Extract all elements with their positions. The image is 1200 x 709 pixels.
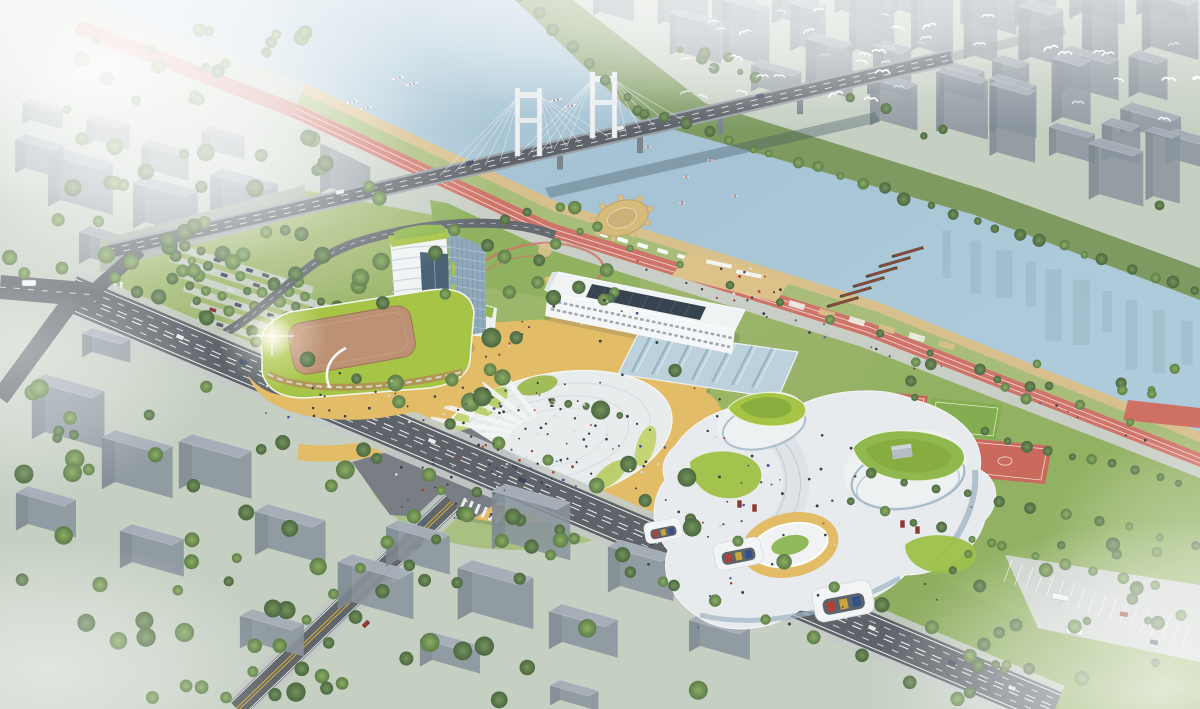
tree xyxy=(302,615,312,625)
tree xyxy=(484,363,497,376)
person-dot xyxy=(590,424,592,426)
tree xyxy=(1043,446,1053,456)
person-dot xyxy=(777,446,779,448)
tree xyxy=(876,329,884,337)
person-dot xyxy=(621,373,624,376)
tree xyxy=(897,192,911,206)
person-dot xyxy=(823,323,825,325)
tree xyxy=(936,522,947,533)
tree xyxy=(436,486,445,495)
person-dot xyxy=(528,326,530,328)
person-dot xyxy=(452,466,454,468)
person-dot xyxy=(842,606,844,608)
person-dot xyxy=(767,464,770,467)
person-dot xyxy=(635,487,637,489)
person-dot xyxy=(432,459,434,461)
person-dot xyxy=(718,475,721,478)
person-dot xyxy=(497,474,499,476)
tree xyxy=(500,214,510,224)
tree xyxy=(256,444,267,455)
tree xyxy=(911,394,918,401)
person-dot xyxy=(510,449,512,451)
person-dot xyxy=(781,492,784,495)
person-dot xyxy=(639,485,641,487)
person-dot xyxy=(834,544,836,546)
water-reflection xyxy=(1045,269,1061,341)
person-dot xyxy=(486,388,488,390)
person-dot xyxy=(913,368,915,370)
person-dot xyxy=(525,456,528,459)
person-dot xyxy=(545,423,547,425)
person-dot xyxy=(493,493,495,495)
person-dot xyxy=(795,319,797,321)
person-dot xyxy=(324,395,326,397)
person-dot xyxy=(758,290,761,293)
person-dot xyxy=(502,410,505,413)
person-dot xyxy=(490,513,493,516)
person-dot xyxy=(779,288,782,291)
person-dot xyxy=(766,316,768,318)
tree xyxy=(1117,385,1127,395)
tree xyxy=(874,597,889,612)
tree xyxy=(355,563,366,574)
tree xyxy=(591,401,610,420)
tree xyxy=(356,442,371,457)
person-dot xyxy=(726,501,728,503)
person-dot xyxy=(394,393,396,395)
person-dot xyxy=(470,435,472,437)
person-dot xyxy=(450,476,453,479)
tree xyxy=(451,577,462,588)
person-dot xyxy=(606,434,609,437)
person-dot xyxy=(508,342,510,344)
person-dot xyxy=(485,509,488,512)
person-dot xyxy=(497,463,499,465)
tree xyxy=(553,532,569,548)
tree xyxy=(1127,264,1137,274)
person-dot xyxy=(537,433,539,435)
person-dot xyxy=(496,486,498,488)
person-dot xyxy=(718,398,721,401)
person-dot xyxy=(534,409,536,411)
tree xyxy=(523,208,532,217)
person-dot xyxy=(647,563,650,566)
tree xyxy=(328,589,339,600)
person-dot xyxy=(1039,402,1041,404)
tree xyxy=(925,358,937,370)
person-dot xyxy=(408,421,411,424)
person-dot xyxy=(457,457,459,459)
person-dot xyxy=(508,345,510,347)
person-dot xyxy=(636,423,638,425)
tree xyxy=(524,539,538,553)
tree xyxy=(932,484,941,493)
person-dot xyxy=(808,478,811,481)
tree xyxy=(1147,389,1157,399)
tree xyxy=(481,239,494,252)
person-dot xyxy=(422,488,425,491)
person-dot xyxy=(531,450,533,452)
person-dot xyxy=(502,467,504,469)
person-dot xyxy=(701,288,703,290)
person-dot xyxy=(576,461,578,463)
person-dot xyxy=(581,323,583,325)
person-dot xyxy=(817,594,820,597)
person-dot xyxy=(494,469,496,471)
tree xyxy=(829,581,840,592)
person-dot xyxy=(574,430,576,432)
person-dot xyxy=(400,466,403,469)
person-dot xyxy=(506,463,508,465)
person-dot xyxy=(808,331,811,334)
person-dot xyxy=(530,467,532,469)
person-dot xyxy=(720,267,723,270)
person-dot xyxy=(517,409,519,411)
rendering-stage xyxy=(0,0,1200,709)
tree xyxy=(776,554,792,570)
person-dot xyxy=(407,405,409,407)
tree xyxy=(1150,273,1160,283)
person-dot xyxy=(313,415,316,418)
person-dot xyxy=(730,582,733,585)
tree xyxy=(855,649,869,663)
tree xyxy=(349,610,363,624)
tree xyxy=(294,661,309,676)
person-dot xyxy=(422,466,424,468)
tree xyxy=(615,547,630,562)
person-dot xyxy=(733,299,735,301)
person-dot xyxy=(477,444,480,447)
person-dot xyxy=(605,438,608,441)
water-reflection xyxy=(1026,262,1036,307)
tree xyxy=(626,245,633,252)
tree xyxy=(905,375,916,386)
person-dot xyxy=(406,499,408,501)
person-dot xyxy=(716,297,718,299)
kayak-wake xyxy=(645,147,651,148)
tree xyxy=(375,584,389,598)
tree xyxy=(336,677,349,690)
tree xyxy=(542,454,553,465)
person-dot xyxy=(504,489,506,491)
person-dot xyxy=(924,583,926,585)
person-dot xyxy=(771,563,774,566)
water-reflection xyxy=(996,250,1013,298)
water-reflection xyxy=(1153,310,1166,373)
person-dot xyxy=(779,479,781,481)
person-dot xyxy=(287,416,290,419)
tree xyxy=(494,369,511,386)
person-dot xyxy=(550,405,552,407)
person-dot xyxy=(741,591,744,594)
person-dot xyxy=(422,419,424,421)
tree xyxy=(407,509,421,523)
tree xyxy=(568,201,582,215)
person-dot xyxy=(642,465,645,468)
tree xyxy=(453,642,472,661)
person-dot xyxy=(486,458,488,460)
person-dot xyxy=(462,421,465,424)
person-dot xyxy=(1067,411,1069,413)
person-dot xyxy=(1077,417,1079,419)
person-dot xyxy=(312,407,315,410)
tree xyxy=(1021,441,1033,453)
water-reflection xyxy=(1126,300,1138,370)
person-dot xyxy=(831,499,833,501)
tree xyxy=(323,637,334,648)
person-dot xyxy=(500,403,503,406)
person-dot xyxy=(514,466,517,469)
tree xyxy=(264,599,282,617)
person-dot xyxy=(694,387,696,389)
water-reflection xyxy=(1181,321,1193,365)
tree xyxy=(926,350,933,357)
tree xyxy=(1096,253,1108,265)
person-dot xyxy=(547,433,549,435)
tree xyxy=(495,534,509,548)
tree xyxy=(1014,229,1026,241)
person-dot xyxy=(850,447,853,450)
person-dot xyxy=(738,275,741,278)
person-dot xyxy=(312,387,314,389)
tree xyxy=(920,132,927,139)
person-dot xyxy=(446,483,448,485)
tree xyxy=(1024,502,1036,514)
tree xyxy=(440,288,451,299)
tree xyxy=(481,328,501,348)
person-dot xyxy=(556,461,558,463)
person-dot xyxy=(664,446,667,449)
tree xyxy=(531,276,544,289)
tree xyxy=(336,460,355,479)
tree xyxy=(187,479,201,493)
tree xyxy=(1032,234,1045,247)
person-dot xyxy=(941,365,943,367)
person-dot xyxy=(552,305,555,308)
kayak-wake xyxy=(683,177,689,178)
tree xyxy=(568,533,580,545)
tree xyxy=(726,281,735,290)
person-dot xyxy=(1055,404,1058,407)
tree xyxy=(445,373,458,386)
person-dot xyxy=(537,382,539,384)
tree xyxy=(974,364,986,376)
person-dot xyxy=(854,475,856,477)
tree xyxy=(981,427,990,436)
tree xyxy=(825,315,835,325)
person-dot xyxy=(552,471,555,474)
tree xyxy=(683,518,702,537)
sun-glare xyxy=(217,281,327,391)
person-dot xyxy=(328,409,330,411)
person-dot xyxy=(746,299,748,301)
person-dot xyxy=(762,312,765,315)
tree xyxy=(576,228,583,235)
person-dot xyxy=(564,383,566,385)
tree xyxy=(732,536,743,547)
person-dot xyxy=(655,341,658,344)
person-dot xyxy=(599,340,602,343)
tree xyxy=(1025,381,1036,392)
person-dot xyxy=(466,500,468,502)
person-dot xyxy=(657,463,660,466)
person-dot xyxy=(567,312,569,314)
tree xyxy=(589,478,605,494)
tree xyxy=(510,331,523,344)
person-dot xyxy=(559,459,562,462)
person-dot xyxy=(590,473,592,475)
tree xyxy=(578,619,597,638)
tree xyxy=(281,520,298,537)
person-dot xyxy=(374,391,376,393)
tree xyxy=(910,519,918,527)
person-dot xyxy=(743,271,746,274)
person-dot xyxy=(462,386,464,388)
person-dot xyxy=(751,296,753,298)
water-reflection xyxy=(1073,280,1090,345)
person-dot xyxy=(594,424,597,427)
person-dot xyxy=(539,394,541,396)
person-dot xyxy=(368,407,371,410)
person-dot xyxy=(339,372,341,374)
wall-poster xyxy=(900,520,905,528)
person-dot xyxy=(498,411,501,414)
person-dot xyxy=(636,312,639,315)
person-dot xyxy=(651,544,653,546)
person-dot xyxy=(629,469,631,471)
person-dot xyxy=(574,417,576,419)
context-box-face xyxy=(1145,127,1153,201)
tree xyxy=(1190,286,1199,295)
tree xyxy=(491,691,508,708)
person-dot xyxy=(465,403,467,405)
person-dot xyxy=(493,443,495,445)
person-dot xyxy=(559,408,561,410)
tree xyxy=(625,566,637,578)
person-dot xyxy=(434,395,437,398)
person-dot xyxy=(562,478,565,481)
tree xyxy=(750,146,757,153)
tree xyxy=(760,614,770,624)
person-dot xyxy=(729,577,731,579)
person-dot xyxy=(488,463,490,465)
person-dot xyxy=(603,299,606,302)
tree xyxy=(371,453,382,464)
tree xyxy=(1126,418,1134,426)
tree xyxy=(431,534,441,544)
person-dot xyxy=(422,521,425,524)
person-dot xyxy=(707,536,709,538)
tree xyxy=(776,298,784,306)
tree xyxy=(1045,382,1054,391)
person-dot xyxy=(971,506,973,508)
person-dot xyxy=(824,336,826,338)
person-dot xyxy=(391,380,393,382)
tree xyxy=(309,558,326,575)
person-dot xyxy=(636,260,638,262)
person-dot xyxy=(669,411,671,413)
tree xyxy=(404,560,415,571)
tree xyxy=(668,364,681,377)
person-dot xyxy=(870,346,872,348)
tree xyxy=(550,238,562,250)
tree xyxy=(964,550,972,558)
tree xyxy=(807,630,821,644)
tree xyxy=(676,261,683,268)
tree xyxy=(555,202,565,212)
wall-poster xyxy=(752,504,757,512)
person-dot xyxy=(677,510,680,513)
person-dot xyxy=(344,415,347,418)
person-dot xyxy=(719,525,722,528)
person-dot xyxy=(583,403,585,405)
tree xyxy=(639,494,652,507)
person-dot xyxy=(547,486,549,488)
tree xyxy=(987,538,996,547)
person-dot xyxy=(607,300,609,302)
tree xyxy=(286,682,305,701)
person-dot xyxy=(496,468,498,470)
person-dot xyxy=(569,455,571,457)
tree xyxy=(514,573,526,585)
person-dot xyxy=(823,522,825,524)
person-dot xyxy=(741,482,743,484)
tree xyxy=(1001,383,1010,392)
tree xyxy=(879,182,891,194)
person-dot xyxy=(551,478,553,480)
person-dot xyxy=(645,460,648,463)
kayak-wake xyxy=(679,203,685,204)
person-dot xyxy=(540,427,543,430)
person-dot xyxy=(485,356,487,358)
person-dot xyxy=(733,292,736,295)
person-dot xyxy=(434,486,436,488)
person-dot xyxy=(750,267,753,270)
tree xyxy=(866,468,877,479)
person-dot xyxy=(621,310,623,312)
tree xyxy=(422,468,436,482)
tree xyxy=(238,504,254,520)
person-dot xyxy=(432,463,434,465)
person-dot xyxy=(548,398,551,401)
person-dot xyxy=(498,402,500,404)
tree xyxy=(1170,364,1180,374)
tree xyxy=(418,574,431,587)
person-dot xyxy=(709,595,711,597)
tree xyxy=(1075,400,1085,410)
wall-poster xyxy=(915,526,920,534)
tree xyxy=(836,172,844,180)
tree xyxy=(1167,276,1180,289)
person-dot xyxy=(482,446,484,448)
person-dot xyxy=(640,471,643,474)
person-dot xyxy=(716,415,719,418)
tree xyxy=(392,395,405,408)
tree xyxy=(351,373,362,384)
tree xyxy=(900,479,908,487)
person-dot xyxy=(760,481,762,483)
person-dot xyxy=(493,407,496,410)
tree xyxy=(1020,393,1031,404)
tree xyxy=(1069,453,1076,460)
tree xyxy=(232,553,242,563)
person-dot xyxy=(497,449,499,451)
tree xyxy=(968,536,975,543)
person-dot xyxy=(585,445,587,447)
tree xyxy=(399,652,413,666)
context-box-face xyxy=(1153,127,1180,204)
person-dot xyxy=(566,458,568,460)
